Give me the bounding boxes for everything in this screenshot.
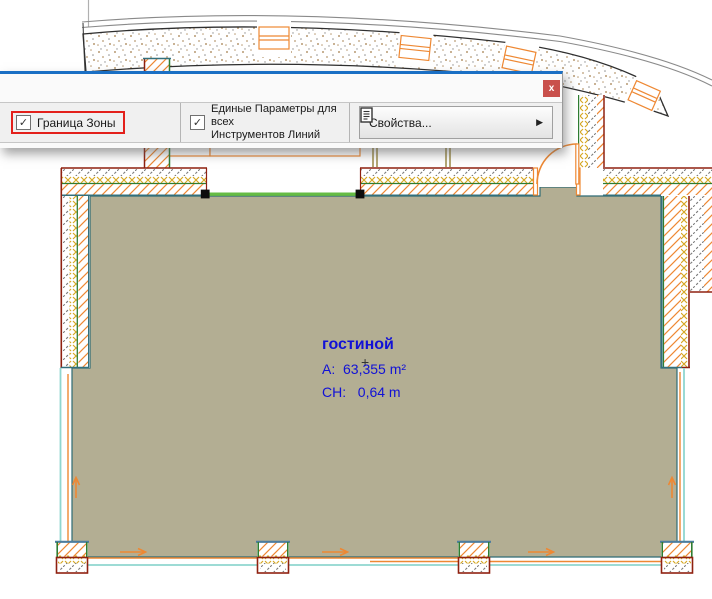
column bbox=[55, 541, 89, 573]
facade-window bbox=[257, 19, 291, 57]
uniform-params-checkbox[interactable]: ✓ bbox=[190, 115, 205, 130]
options-toolbar: ✓ Граница Зоны ✓ Единые Параметры для вс… bbox=[0, 102, 562, 143]
column bbox=[660, 541, 694, 573]
boundary-node[interactable] bbox=[201, 190, 210, 199]
zone-area-label: A: 63,355 m² bbox=[322, 362, 406, 376]
zone-name-label[interactable]: гостиной bbox=[322, 337, 394, 353]
options-bar-dialog: x ✓ Граница Зоны ✓ Единые Параметры для … bbox=[0, 71, 563, 148]
uniform-params-label: Единые Параметры для всех Инструментов Л… bbox=[211, 103, 349, 142]
zone-boundary-label: Граница Зоны bbox=[37, 116, 116, 130]
zone-boundary-checkbox[interactable]: ✓ bbox=[16, 115, 31, 130]
uniform-params-section: ✓ Единые Параметры для всех Инструментов… bbox=[181, 103, 350, 142]
column bbox=[256, 541, 290, 573]
top-wall-left-segment bbox=[61, 168, 207, 196]
door-side-wall bbox=[578, 95, 605, 168]
right-wall bbox=[661, 196, 712, 368]
uniform-params-line1: Единые Параметры для всех bbox=[211, 103, 337, 128]
uniform-params-line2: Инструментов Линий bbox=[211, 129, 320, 141]
column bbox=[457, 541, 491, 573]
application-window: гостиной + A: 63,355 m² CH: 0,64 m x ✓ Г… bbox=[0, 0, 712, 599]
properties-button[interactable]: Свойства... ▶ bbox=[359, 106, 553, 139]
properties-doc-icon bbox=[360, 107, 373, 123]
close-button[interactable]: x bbox=[543, 80, 560, 97]
zone-height-label: CH: 0,64 m bbox=[322, 385, 401, 399]
left-wall bbox=[60, 168, 90, 368]
boundary-node[interactable] bbox=[356, 190, 365, 199]
facade-window bbox=[396, 27, 434, 68]
properties-label: Свойства... bbox=[369, 116, 432, 130]
top-wall-right-segment bbox=[360, 168, 533, 196]
zone-boundary-section: ✓ Граница Зоны bbox=[0, 103, 181, 142]
zone-boundary-highlight-box: ✓ Граница Зоны bbox=[11, 111, 125, 134]
properties-section: Свойства... ▶ bbox=[350, 103, 562, 142]
top-wall-east-band bbox=[603, 168, 712, 196]
submenu-arrow-icon: ▶ bbox=[536, 117, 543, 128]
